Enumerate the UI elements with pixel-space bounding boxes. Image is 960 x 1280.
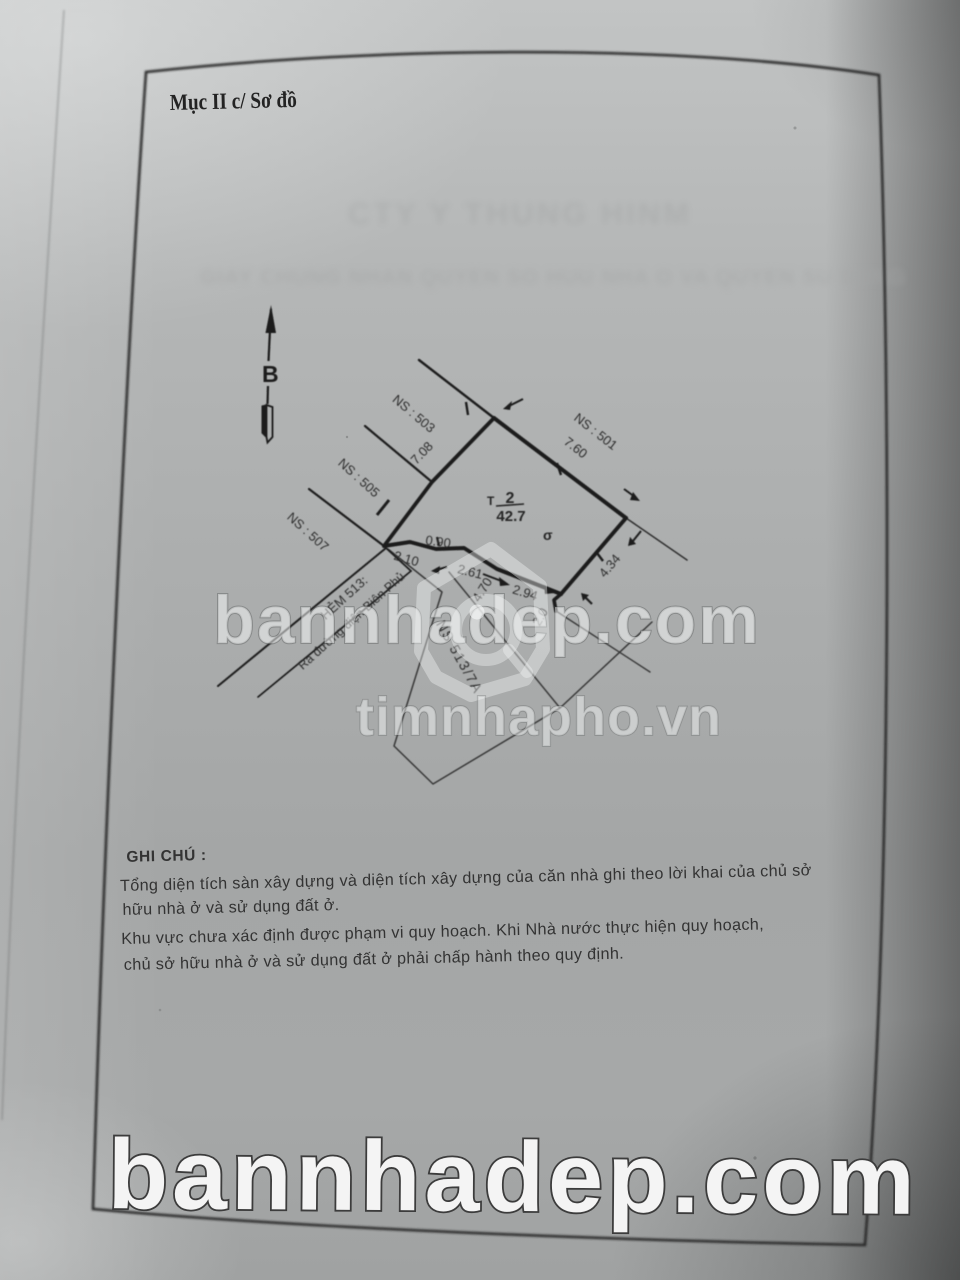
svg-text:Mục II c/ Sơ đồ: Mục II c/ Sơ đồ <box>170 87 298 115</box>
svg-text:CTY Y THUNG HINM: CTY Y THUNG HINM <box>348 196 692 231</box>
svg-text:42.7: 42.7 <box>496 508 525 525</box>
svg-text:Tổng diện tích sàn xây dựng và: Tổng diện tích sàn xây dựng và diện tích… <box>120 861 812 895</box>
svg-text:NS : 503: NS : 503 <box>390 392 438 436</box>
svg-text:T: T <box>487 494 495 508</box>
svg-text:GHI CHÚ :: GHI CHÚ : <box>126 846 207 866</box>
svg-text:chủ sở hữu nhà ở và sử dụng đấ: chủ sở hữu nhà ở và sử dụng đất ở phải c… <box>124 945 625 974</box>
svg-text:B: B <box>262 361 279 387</box>
svg-text:GIAY CHUNG NHAN QUYEN SO HUU N: GIAY CHUNG NHAN QUYEN SO HUU NHA O VA QU… <box>200 266 906 289</box>
svg-text:NS : 505: NS : 505 <box>335 455 383 500</box>
svg-text:σ: σ <box>543 527 553 543</box>
svg-text:Khu vực chưa xác định được phạ: Khu vực chưa xác định được phạm vi quy h… <box>121 915 764 948</box>
svg-text:bannhadep.com: bannhadep.com <box>213 582 760 658</box>
svg-text:NS : 507: NS : 507 <box>284 509 332 554</box>
svg-text:7.08: 7.08 <box>408 439 436 468</box>
svg-text:2.10: 2.10 <box>392 548 420 569</box>
svg-text:bannhadep.com: bannhadep.com <box>107 1118 919 1235</box>
svg-text:hữu nhà ở và sử dụng đất ở.: hữu nhà ở và sử dụng đất ở. <box>122 896 339 919</box>
svg-text:timnhapho.vn: timnhapho.vn <box>356 687 722 747</box>
svg-text:7.60: 7.60 <box>561 434 590 461</box>
